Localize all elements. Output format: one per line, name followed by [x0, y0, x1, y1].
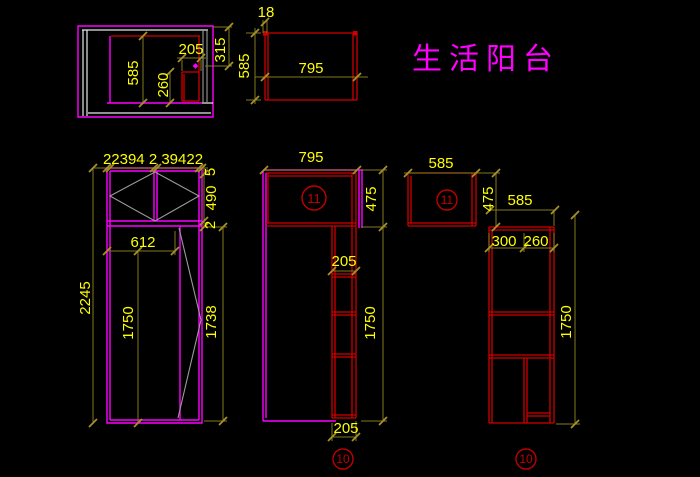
right-elevation: 585 475 585 300 260 1750 11 10 [404, 155, 580, 469]
midelev-badge-bottom-number: 10 [336, 452, 350, 466]
plan-dim-cabinet-depth: 260 [155, 72, 172, 97]
midelev-dim-width: 795 [298, 149, 323, 166]
topelev-dim-width: 795 [298, 60, 323, 77]
rightelev-dim-width: 585 [507, 192, 532, 209]
rightelev-dim-right-width: 260 [523, 233, 548, 250]
leftelev-dim-frame-top: 5 [202, 168, 219, 176]
leftelev-dim-total-height: 2245 [77, 281, 94, 314]
midelev-dim-column-height: 1750 [362, 306, 379, 339]
leftelev-dim-door-inner: 1738 [203, 305, 220, 338]
rightelev-dim-left-width: 300 [491, 233, 516, 250]
leftelev-dim-top: 22394 2 39422 [103, 151, 203, 168]
topelev-dim-thickness: 18 [258, 4, 275, 21]
plan-dim-cabinet-width: 205 [178, 41, 203, 58]
mid-elevation: 795 475 205 1750 205 11 10 [260, 149, 387, 469]
drawing-title: 生活阳台 [412, 43, 560, 76]
leftelev-door-swing [178, 228, 201, 418]
plan-view: 585 260 205 315 [78, 23, 233, 117]
rightelev-badge-top-number: 11 [441, 193, 454, 207]
leftelev-frame [107, 168, 202, 423]
rightelev-dim-top-height: 475 [480, 186, 497, 211]
rightelev-dim-top-width: 585 [428, 155, 453, 172]
left-elevation: 22394 2 39422 5 490 2 612 2245 1750 1738 [77, 151, 227, 427]
topelev-corner-right [353, 31, 358, 36]
plan-dim-side: 315 [212, 37, 229, 62]
midelev-dim-top-height: 475 [363, 186, 380, 211]
midelev-dim-column-width-top: 205 [331, 253, 356, 270]
midelev-badge-top-number: 11 [307, 191, 321, 206]
plan-dim-depth: 585 [125, 60, 142, 85]
rightelev-badge-bottom-number: 10 [519, 452, 533, 466]
rightelev-tall-cabinet [489, 227, 554, 423]
midelev-dim-column-width-bottom: 205 [333, 420, 358, 437]
leftelev-dim-opening: 612 [130, 234, 155, 251]
leftelev-dim-glass: 490 [203, 185, 220, 210]
plan-point-marker [193, 63, 199, 69]
cad-canvas: 585 260 205 315 18 585 795 生活阳台 22394 2 … [0, 0, 700, 477]
topelev-dim-height: 585 [236, 53, 253, 78]
cad-drawing: 585 260 205 315 18 585 795 生活阳台 22394 2 … [0, 0, 700, 477]
rightelev-dim-height: 1750 [558, 305, 575, 338]
top-elevation: 18 585 795 [236, 4, 368, 104]
leftelev-dim-door-height: 1750 [120, 306, 137, 339]
leftelev-dim-gap: 2 [202, 221, 219, 229]
midelev-frame [263, 170, 363, 421]
